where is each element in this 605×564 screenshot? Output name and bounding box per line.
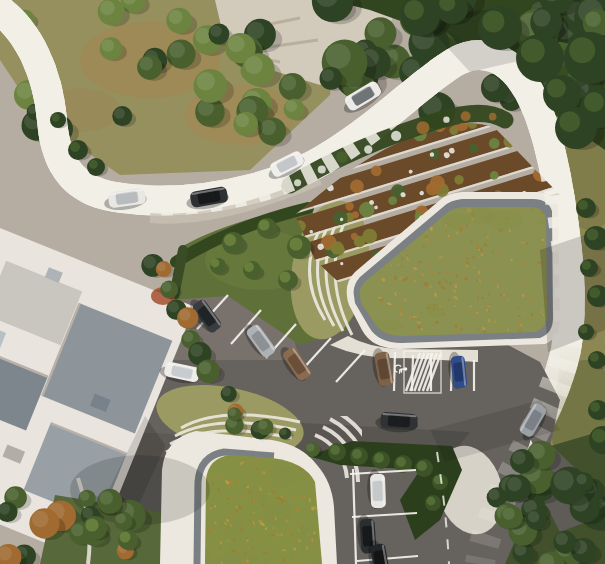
tree-highlight bbox=[168, 301, 179, 312]
tree-highlight bbox=[70, 142, 80, 152]
roof-tone-patch bbox=[295, 525, 313, 546]
roof-tone-patch bbox=[487, 210, 522, 230]
car-windshield bbox=[405, 416, 410, 427]
tree-highlight bbox=[211, 259, 220, 268]
hedge-accent bbox=[318, 165, 326, 173]
tree-highlight bbox=[483, 76, 499, 92]
roof-tone-patch bbox=[270, 467, 306, 485]
tree-highlight bbox=[258, 420, 267, 429]
tree-highlight bbox=[326, 43, 351, 68]
tree-highlight bbox=[102, 39, 115, 52]
tree-highlight bbox=[85, 518, 98, 531]
tree-highlight bbox=[99, 491, 113, 505]
round-bush-highlight bbox=[417, 461, 427, 471]
tree-highlight bbox=[114, 108, 125, 119]
tree-highlight bbox=[169, 42, 185, 58]
tree-highlight bbox=[183, 332, 193, 342]
tree-highlight bbox=[281, 75, 296, 90]
roof-tone-patch bbox=[469, 206, 493, 225]
tree-highlight bbox=[555, 533, 568, 546]
tree-highlight bbox=[6, 488, 18, 500]
tree-highlight bbox=[80, 491, 90, 501]
tree-highlight bbox=[196, 72, 215, 91]
tree-highlight bbox=[236, 114, 249, 127]
tree-highlight bbox=[488, 489, 499, 500]
tree-highlight bbox=[289, 237, 302, 250]
tree-highlight bbox=[229, 408, 237, 416]
tree-highlight bbox=[100, 0, 115, 15]
roof-tone-patch bbox=[252, 493, 267, 503]
tree-highlight bbox=[228, 36, 245, 53]
tree-highlight bbox=[590, 402, 600, 412]
hedge-accent bbox=[443, 116, 449, 122]
round-bush-highlight bbox=[396, 457, 406, 467]
tree-highlight bbox=[198, 361, 211, 374]
tree-highlight bbox=[482, 10, 504, 32]
tree-highlight bbox=[120, 532, 131, 543]
tree-highlight bbox=[533, 9, 551, 27]
aerial-site-render: Aerial architectural rendering: two gree… bbox=[0, 0, 605, 564]
round-bush-highlight bbox=[352, 449, 362, 459]
stall-line bbox=[394, 352, 395, 391]
tree-highlight bbox=[547, 79, 566, 98]
tree-highlight bbox=[569, 37, 595, 63]
tree-highlight bbox=[32, 511, 49, 528]
round-bush-highlight bbox=[427, 497, 436, 506]
tree-highlight bbox=[210, 25, 222, 37]
tree-highlight bbox=[143, 256, 156, 269]
tree-highlight bbox=[404, 0, 424, 20]
tree-highlight bbox=[528, 511, 539, 522]
hedge-accent bbox=[391, 131, 401, 141]
tree-highlight bbox=[580, 326, 588, 334]
hedge-accent bbox=[461, 111, 471, 121]
hedge-accent bbox=[416, 121, 429, 134]
tree-highlight bbox=[245, 56, 263, 74]
tree-highlight bbox=[244, 262, 254, 272]
tree-highlight bbox=[224, 234, 236, 246]
tree-highlight bbox=[367, 20, 385, 38]
tree-highlight bbox=[139, 57, 153, 71]
tree-highlight bbox=[590, 353, 599, 362]
tree-highlight bbox=[89, 160, 98, 169]
render-canvas bbox=[0, 0, 605, 564]
tree-highlight bbox=[52, 114, 60, 122]
tree-highlight bbox=[222, 387, 231, 396]
roof-tone-patch bbox=[427, 304, 443, 319]
roof-tone-patch bbox=[225, 520, 246, 540]
tree-highlight bbox=[521, 39, 545, 63]
tree-highlight bbox=[306, 443, 314, 451]
tree-highlight bbox=[280, 272, 291, 283]
tree-highlight bbox=[162, 282, 172, 292]
tree-highlight bbox=[559, 111, 580, 132]
tree-highlight bbox=[578, 200, 588, 210]
tree-highlight bbox=[179, 309, 191, 321]
tree-highlight bbox=[584, 92, 604, 112]
round-bush-highlight bbox=[330, 445, 340, 455]
roof-speckle bbox=[402, 276, 403, 278]
round-bush-highlight bbox=[374, 453, 384, 463]
tree-highlight bbox=[261, 120, 276, 135]
tree-highlight bbox=[169, 10, 183, 24]
tree-highlight bbox=[16, 83, 32, 99]
tree-highlight bbox=[507, 477, 521, 491]
roof-tone-patch bbox=[262, 502, 292, 525]
hedge-accent bbox=[364, 145, 372, 153]
tree-highlight bbox=[286, 101, 297, 112]
tree-highlight bbox=[589, 287, 600, 298]
tree-highlight bbox=[259, 220, 270, 231]
tree-highlight bbox=[553, 470, 574, 491]
car-windshield bbox=[373, 497, 383, 501]
hedge-accent bbox=[294, 179, 301, 186]
roof-tone-patch bbox=[443, 213, 470, 228]
tree-highlight bbox=[576, 474, 586, 484]
tree-highlight bbox=[512, 451, 525, 464]
hedge-accent bbox=[489, 113, 497, 121]
tree-highlight bbox=[582, 261, 591, 270]
tree-highlight bbox=[71, 524, 84, 537]
tree-highlight bbox=[190, 344, 203, 357]
tree-highlight bbox=[280, 429, 287, 436]
tree-highlight bbox=[586, 228, 598, 240]
tree-highlight bbox=[502, 508, 514, 520]
tree-highlight bbox=[157, 262, 166, 271]
hedge-accent bbox=[336, 151, 348, 163]
tree-highlight bbox=[321, 69, 333, 81]
tree-highlight bbox=[585, 11, 601, 27]
